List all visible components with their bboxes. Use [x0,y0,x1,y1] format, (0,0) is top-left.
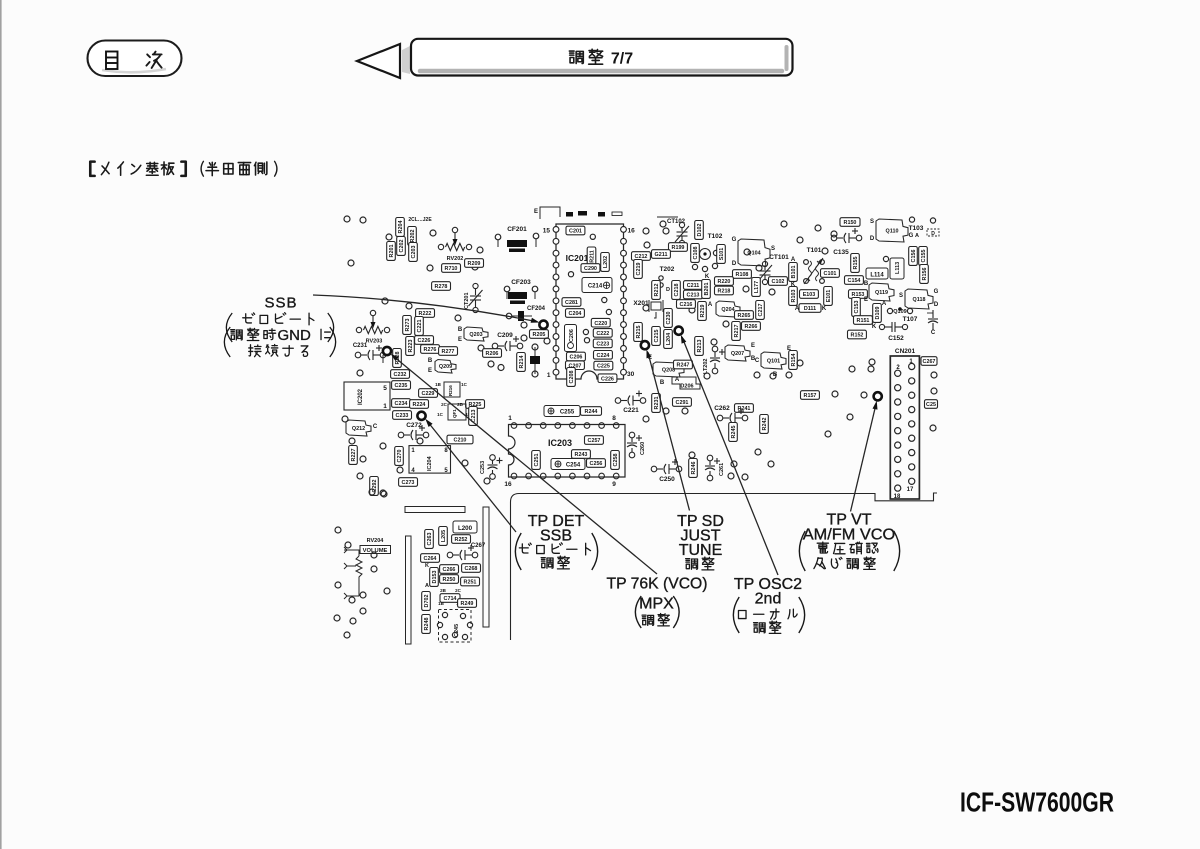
svg-text:R265: R265 [738,313,751,319]
svg-text:1: 1 [547,372,551,379]
svg-text:C213: C213 [687,293,700,299]
svg-text:C214: C214 [588,284,603,290]
svg-text:30: 30 [627,371,635,378]
svg-text:C262: C262 [714,405,730,412]
svg-text:C290: C290 [584,266,597,272]
svg-text:A: A [882,301,887,307]
svg-text:C211: C211 [687,283,700,289]
svg-text:C152: C152 [888,335,904,342]
svg-text:R204: R204 [398,221,404,234]
svg-text:C153: C153 [854,301,860,314]
svg-text:CT101: CT101 [769,254,789,261]
svg-text:C226: C226 [418,338,431,344]
svg-text:C224: C224 [597,353,610,359]
svg-text:B201: B201 [704,283,710,296]
svg-text:R103: R103 [791,290,797,303]
svg-text:E: E [534,209,538,215]
svg-text:R249: R249 [461,601,474,607]
svg-text:Q109: Q109 [893,309,906,315]
svg-text:B: B [660,380,665,386]
svg-text:C135: C135 [833,249,849,256]
svg-text:C206: C206 [570,355,583,361]
svg-text:C217: C217 [758,304,764,317]
svg-text:S: S [870,219,874,225]
svg-text:R277: R277 [442,349,455,355]
svg-text:R227: R227 [351,449,357,462]
svg-text:C256: C256 [590,461,603,467]
svg-text:C155: C155 [921,250,927,263]
svg-text:C222: C222 [596,331,609,337]
svg-text:LT202: LT202 [703,359,709,375]
svg-text:C254: C254 [566,463,581,469]
svg-text:R155: R155 [853,257,859,270]
svg-text:TUNE: TUNE [679,542,723,559]
svg-text:E101: E101 [826,290,832,303]
svg-text:C: C [931,330,936,336]
svg-text:C253: C253 [480,461,486,474]
svg-text:R219: R219 [700,305,706,318]
svg-text:C219: C219 [636,263,642,276]
svg-text:C102: C102 [772,279,785,285]
svg-text:C234: C234 [395,401,408,407]
svg-text:C220: C220 [594,321,607,327]
svg-text:MPX: MPX [639,595,674,612]
svg-text:Q208: Q208 [662,368,675,374]
svg-text:IC203: IC203 [548,438,572,448]
svg-text:C225: C225 [597,364,610,370]
svg-text:IC201: IC201 [566,253,589,263]
svg-text:S: S [771,246,775,252]
svg-text:IC202: IC202 [358,388,364,405]
svg-text:7/7: 7/7 [611,51,633,68]
svg-text:R710: R710 [445,266,458,272]
svg-text:R211: R211 [590,250,596,263]
svg-text:A: A [425,583,429,589]
svg-text:R223: R223 [408,340,414,353]
svg-text:R244: R244 [585,409,598,415]
svg-text:E: E [428,368,432,374]
svg-text:1B: 1B [435,382,442,387]
svg-text:R209: R209 [468,261,481,267]
svg-text:E: E [864,297,868,303]
svg-text:L113: L113 [895,262,901,274]
svg-text:2B: 2B [440,588,447,593]
svg-text:18: 18 [894,494,901,500]
svg-text:B: B [864,281,869,287]
svg-text:CF203: CF203 [511,279,531,286]
svg-text:L202: L202 [603,256,609,268]
svg-text:C25: C25 [926,402,936,408]
svg-text:A: A [708,302,713,308]
svg-text:Q209: Q209 [439,364,452,370]
svg-text:R252: R252 [455,537,468,543]
svg-text:16: 16 [504,481,512,488]
svg-text:K: K [705,274,710,280]
svg-text:C210: C210 [454,438,467,444]
svg-text:B101: B101 [791,266,797,279]
svg-text:C221: C221 [417,320,423,333]
svg-text:R242: R242 [762,418,768,431]
svg-text:R202: R202 [410,230,416,243]
svg-text:D153: D153 [432,571,438,584]
svg-text:C266: C266 [443,567,456,573]
svg-text:D: D [934,302,939,308]
svg-text:C223: C223 [596,342,609,348]
svg-text:R215: R215 [636,326,642,339]
svg-text:C203: C203 [411,246,417,259]
svg-text:IC204: IC204 [427,455,433,471]
svg-text:ICF-SW7600GR: ICF-SW7600GR [960,787,1114,818]
svg-text:K: K [791,282,796,288]
svg-text:15: 15 [543,228,551,235]
svg-text:2nd: 2nd [755,591,782,608]
svg-text:E: E [458,337,462,343]
svg-text:R154: R154 [791,354,797,367]
svg-text:C291: C291 [676,400,689,406]
svg-text:C208: C208 [569,371,575,384]
svg-text:R151: R151 [857,318,870,324]
svg-text:C204: C204 [569,311,582,317]
svg-text:R214: R214 [519,356,525,369]
svg-text:G: G [909,233,914,239]
svg-text:Q203: Q203 [469,332,482,338]
svg-text:R152: R152 [851,333,864,339]
svg-text:C263: C263 [427,533,433,546]
svg-text:C206: C206 [569,329,575,342]
svg-text:C251: C251 [534,454,540,467]
svg-text:T107: T107 [903,316,918,323]
svg-text:CF201: CF201 [507,226,527,233]
svg-text:1: 1 [508,415,512,422]
svg-text:L205: L205 [441,530,447,542]
svg-text:17: 17 [907,487,914,493]
svg-text:C264: C264 [424,556,437,562]
svg-text:C261: C261 [719,463,725,476]
svg-text:2C: 2C [455,588,462,593]
svg-text:C230: C230 [666,312,672,325]
svg-text:C255: C255 [560,410,575,416]
svg-text:L204: L204 [666,333,672,345]
svg-text:C202: C202 [399,240,405,253]
svg-text:9: 9 [612,481,616,488]
svg-text:C101: C101 [824,271,837,277]
svg-text:C: C [755,358,760,364]
svg-text:C273: C273 [402,480,415,486]
svg-text:Q212: Q212 [352,426,365,432]
svg-text:CF204: CF204 [527,306,546,312]
svg-text:8: 8 [612,415,616,422]
svg-text:R220: R220 [718,279,731,285]
svg-text:R250: R250 [443,577,456,583]
svg-text:R205: R205 [533,332,546,338]
svg-text:E103: E103 [803,292,816,298]
svg-text:L200: L200 [458,525,473,532]
svg-text:C201: C201 [569,229,582,235]
svg-text:R212: R212 [654,284,660,297]
svg-text:R245: R245 [731,426,737,439]
svg-text:C226: C226 [601,376,614,382]
svg-text:A: A [915,233,919,239]
svg-text:SSB: SSB [540,528,572,545]
svg-text:R251: R251 [464,580,477,586]
svg-text:C714: C714 [444,596,457,602]
svg-text:R243: R243 [575,452,588,458]
svg-text:A: A [675,377,680,383]
svg-text:C281: C281 [565,300,578,306]
svg-text:R217: R217 [734,325,740,338]
svg-text:Q104: Q104 [747,251,760,257]
svg-text:2CL…J2E: 2CL…J2E [408,217,432,223]
svg-text:C260: C260 [640,442,646,455]
svg-text:5: 5 [383,385,387,392]
svg-text:R157: R157 [804,393,817,399]
svg-text:K: K [822,306,827,312]
svg-text:X201: X201 [633,300,649,307]
svg-text:C215: C215 [654,330,660,343]
svg-text:GND: GND [278,327,312,344]
svg-text:Q119: Q119 [875,290,888,296]
svg-text:QF1: QF1 [452,409,457,418]
svg-text:C209: C209 [497,332,513,339]
svg-text:C: C [373,424,378,430]
svg-text:16: 16 [628,228,636,235]
svg-text:VOLUME: VOLUME [363,548,388,554]
svg-text:D102: D102 [697,224,703,237]
svg-text:SSB: SSB [264,294,297,311]
svg-text:1C: 1C [437,412,444,417]
svg-text:R213: R213 [697,340,703,353]
svg-text:C218: C218 [674,284,680,297]
svg-text:S101: S101 [719,248,725,261]
svg-text:R108: R108 [736,272,749,278]
svg-text:C233: C233 [396,413,409,419]
svg-text:S: S [899,293,903,299]
svg-text:L177: L177 [754,281,760,293]
svg-text:D109: D109 [875,307,881,320]
svg-text:C232: C232 [394,372,407,378]
svg-text:R266: R266 [745,324,758,330]
svg-text:R206: R206 [486,351,499,357]
svg-text:RV203: RV203 [366,339,383,345]
svg-text:R246: R246 [691,462,697,475]
svg-text:CN201: CN201 [895,348,916,355]
svg-text:R276: R276 [424,347,437,353]
svg-text:RV204: RV204 [367,538,385,544]
svg-text:R216: R216 [448,385,453,396]
svg-text:A: A [791,257,796,263]
svg-text:E: E [751,343,755,349]
svg-text:T202: T202 [660,266,675,273]
svg-text:D206: D206 [680,384,693,390]
svg-text:Q204: Q204 [721,307,734,313]
svg-text:1C: 1C [461,382,468,387]
svg-text:1: 1 [383,403,387,410]
svg-text:T101: T101 [807,247,822,254]
svg-text:D: D [666,287,670,293]
svg-text:C270: C270 [397,450,403,463]
svg-text:G: G [732,237,737,243]
svg-text:C154: C154 [848,278,861,284]
svg-text:B: B [428,358,433,364]
svg-text:A: A [795,306,800,312]
svg-text:AM/FM VCO: AM/FM VCO [803,527,896,544]
svg-text:CT201: CT201 [464,292,470,309]
svg-text:C156: C156 [911,250,917,263]
svg-text:2C: 2C [441,402,448,407]
svg-text:K: K [425,563,429,569]
svg-text:R273: R273 [405,319,411,332]
svg-text:C229: C229 [422,391,435,397]
svg-text:RV202: RV202 [447,256,464,262]
svg-text:T102: T102 [708,233,723,240]
svg-text:C108: C108 [693,247,699,260]
svg-text:R150: R150 [844,220,857,226]
svg-text:C231: C231 [353,343,368,349]
svg-text:TP 76K (VCO): TP 76K (VCO) [607,575,708,592]
svg-text:R231: R231 [654,397,660,410]
svg-text:Q110: Q110 [886,229,899,235]
svg-text:R247: R247 [677,363,690,369]
svg-text:G: G [934,289,939,295]
svg-text:R218: R218 [718,289,731,295]
svg-text:C250: C250 [659,476,675,483]
svg-text:R201: R201 [389,245,395,258]
svg-text:K: K [872,324,877,330]
svg-text:T103: T103 [909,225,924,232]
svg-text:C221: C221 [623,407,639,414]
svg-text:R278: R278 [435,284,448,290]
svg-text:B: B [458,327,463,333]
svg-text:Q207: Q207 [731,351,744,357]
svg-text:D: D [732,261,737,267]
svg-text:1B: 1B [438,601,445,606]
svg-text:R248: R248 [424,618,430,631]
svg-text:C216: C216 [680,302,693,308]
svg-text:R199: R199 [672,245,685,251]
svg-text:R156: R156 [922,268,928,281]
svg-text:Q118: Q118 [913,297,926,303]
svg-text:D: D [931,231,935,237]
svg-text:D: D [870,236,875,242]
svg-text:R224: R224 [413,402,426,408]
svg-text:C235: C235 [395,383,408,389]
svg-text:C257: C257 [588,438,601,444]
svg-text:C268: C268 [465,566,478,572]
svg-text:D702: D702 [424,595,430,608]
svg-text:G211: G211 [655,252,668,258]
svg-text:C267: C267 [923,359,936,365]
svg-text:C258: C258 [613,454,619,467]
svg-text:Q101: Q101 [767,359,780,365]
svg-text:L114: L114 [870,272,884,278]
svg-text:D111: D111 [804,306,816,312]
